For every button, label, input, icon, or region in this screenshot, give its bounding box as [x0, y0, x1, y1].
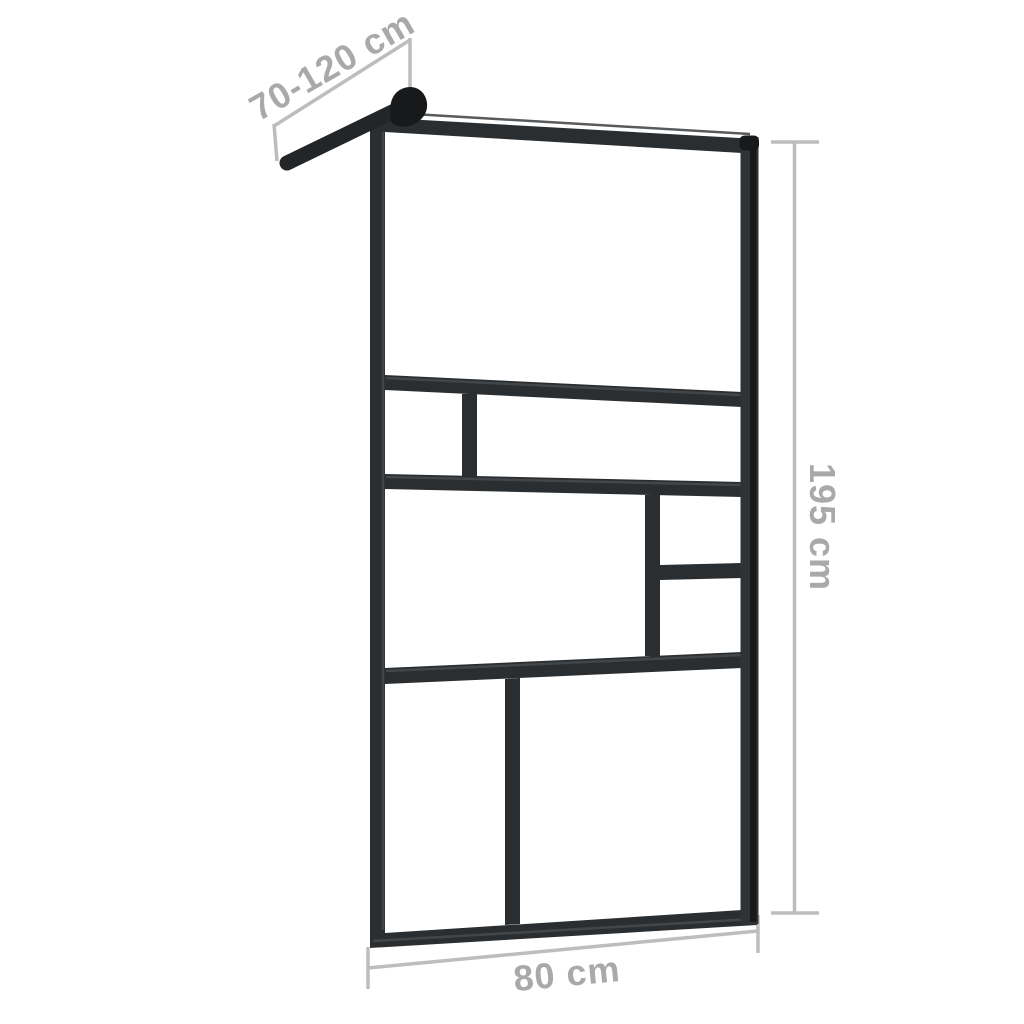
wall-profile-top-cap [740, 136, 760, 151]
height-dimension-label: 195 cm [802, 463, 843, 591]
height-dimension: 195 cm [771, 142, 843, 913]
wall-profile [740, 136, 760, 925]
muntin-bar-v2 [645, 495, 660, 656]
muntin-bar-v3 [505, 678, 520, 925]
product-dimension-diagram: 70-120 cm 195 cm 80 cm [0, 0, 1024, 1024]
frame-highlights [373, 113, 754, 941]
width-dimension-label: 80 cm [512, 948, 623, 999]
glass-panel-frame [370, 117, 757, 948]
muntin-bar-v1 [462, 394, 477, 477]
muntin-bar-h3 [660, 563, 742, 580]
shower-screen [287, 87, 759, 948]
wall-profile-groove [750, 139, 757, 922]
arm-dimension-tick-left [274, 124, 277, 161]
shower-screen-diagram: 70-120 cm 195 cm 80 cm [0, 0, 1024, 1024]
